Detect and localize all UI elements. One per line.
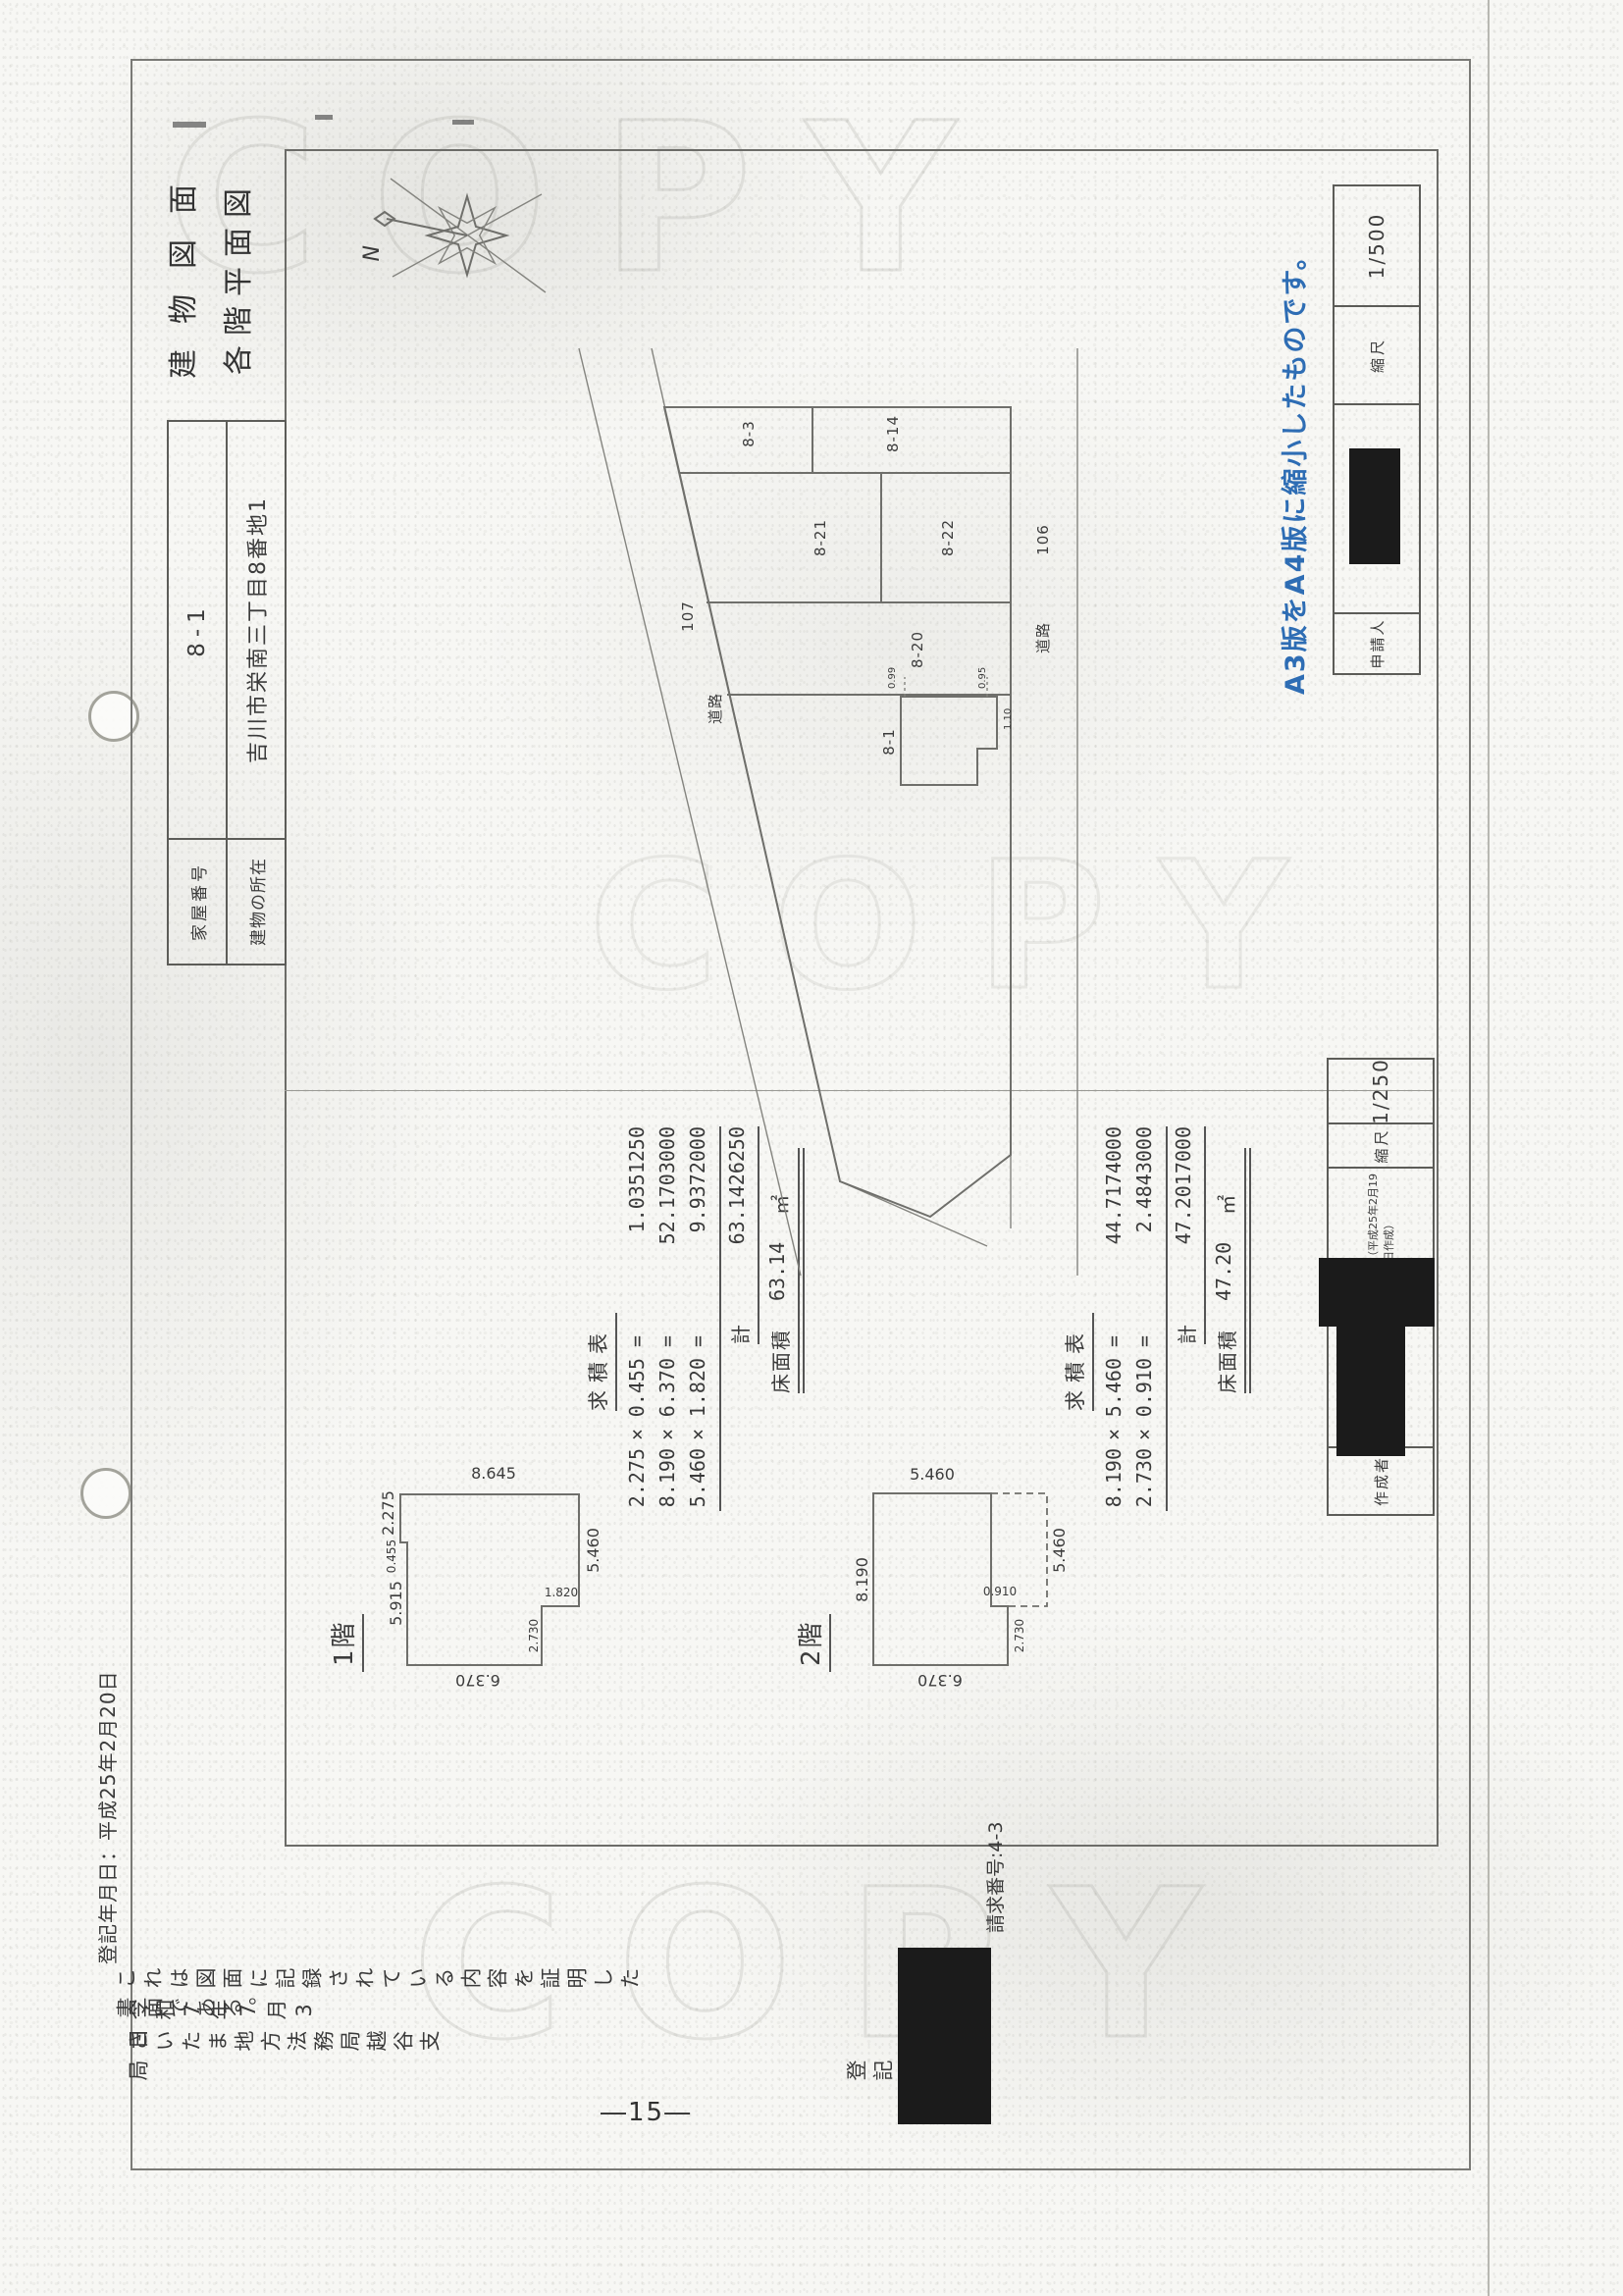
floor2-plan: 8.190 5.460 6.370 2.730 0.910 5.460 bbox=[853, 1465, 1069, 1690]
dim-label: 5.460 bbox=[1050, 1528, 1069, 1573]
creator-name-redaction bbox=[1336, 1325, 1405, 1456]
parcel-label: 8-21 bbox=[811, 519, 829, 556]
dim-label: 2.730 bbox=[527, 1619, 541, 1652]
parcel-label: 8-3 bbox=[740, 420, 758, 447]
applicant-name-redaction bbox=[1349, 448, 1400, 564]
dim-label: 2.730 bbox=[1013, 1619, 1026, 1652]
dim-label: 8.645 bbox=[471, 1464, 516, 1483]
dim-label: 5.460 bbox=[584, 1528, 602, 1573]
parcel-label: 8-1 bbox=[880, 728, 898, 756]
parcel-label: 8-14 bbox=[884, 415, 902, 452]
dim-label: 6.370 bbox=[455, 1671, 500, 1690]
road-label: 道路 bbox=[1034, 622, 1052, 653]
offset-label: 1.10 bbox=[1003, 708, 1014, 730]
offset-label: 0.95 bbox=[977, 667, 988, 689]
dim-label: 2.275 bbox=[379, 1490, 397, 1536]
road-label: 道路 bbox=[707, 693, 724, 724]
creator-name-redaction bbox=[1319, 1258, 1435, 1327]
dim-label: 5.915 bbox=[387, 1581, 405, 1626]
road-number: 107 bbox=[679, 600, 697, 632]
floor1-plan: 5.915 0.455 2.275 8.645 5.460 6.370 1.82… bbox=[379, 1464, 602, 1690]
building-footprint bbox=[901, 697, 997, 785]
offset-label: 0.99 bbox=[887, 667, 898, 689]
north-arrow: N bbox=[360, 179, 546, 292]
dim-label: 1.820 bbox=[545, 1586, 578, 1599]
scanned-document-page: COPY COPY COPY ―15― 登記年月日：平成25年2月20日 請求番… bbox=[0, 0, 1623, 2296]
dim-label: 6.370 bbox=[917, 1671, 963, 1690]
parcel-label: 8-20 bbox=[909, 631, 926, 668]
registrar-name-redaction bbox=[898, 1948, 991, 2124]
drawings-layer: 5.915 0.455 2.275 8.645 5.460 6.370 1.82… bbox=[0, 0, 1623, 2296]
dim-label: 5.460 bbox=[910, 1465, 955, 1484]
site-plan: 8-3 8-14 8-21 8-22 8-20 8-1 107 道路 106 道… bbox=[579, 348, 1077, 1276]
parcel-label: 8-22 bbox=[939, 519, 957, 556]
north-label: N bbox=[360, 245, 385, 261]
road-number: 106 bbox=[1034, 524, 1052, 555]
dim-label: 0.910 bbox=[983, 1585, 1017, 1598]
dim-label: 8.190 bbox=[853, 1557, 871, 1602]
dim-label: 0.455 bbox=[385, 1539, 398, 1573]
landscape-drawing-sheet: 登記年月日：平成25年2月20日 請求番号:4-3 これは図面に記録されている内… bbox=[0, 0, 1623, 2296]
